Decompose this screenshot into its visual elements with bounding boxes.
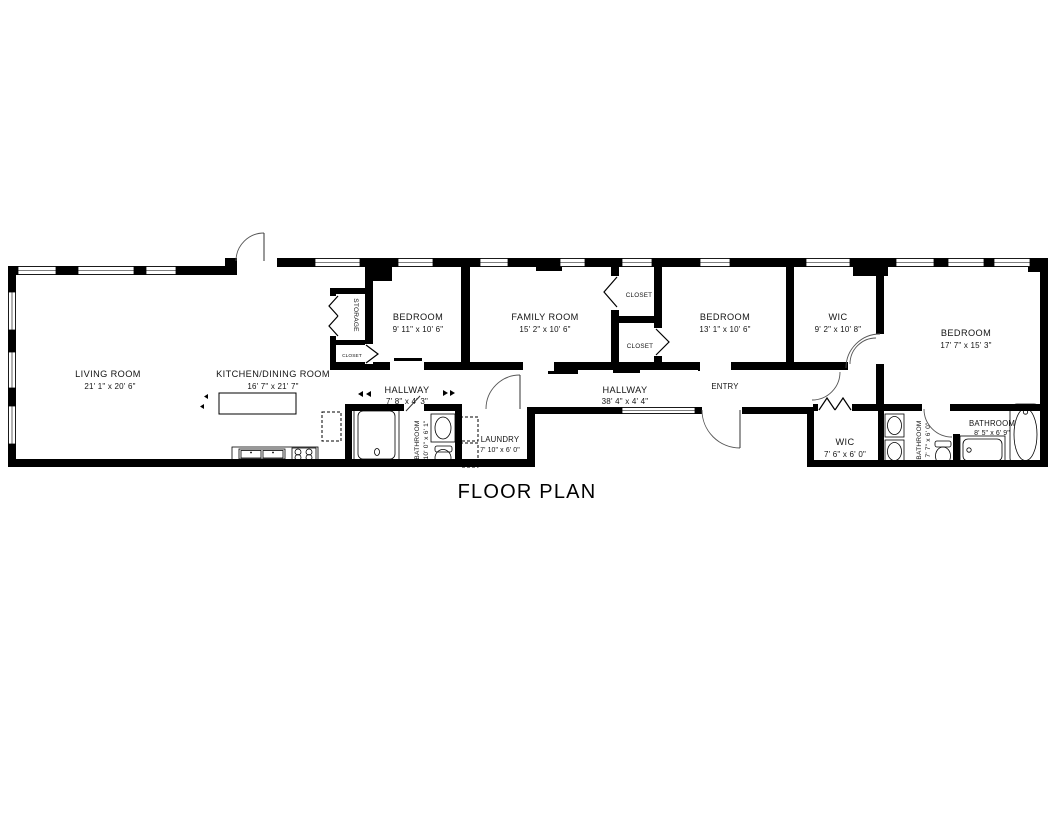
window bbox=[948, 259, 984, 267]
window bbox=[622, 259, 652, 267]
labels: LIVING ROOM 21' 1" x 20' 6" KITCHEN/DINI… bbox=[75, 292, 1015, 503]
shower-bathroom1 bbox=[354, 407, 399, 463]
kitchen-dining-dims: 16' 7" x 21' 7" bbox=[247, 382, 298, 391]
bedroom1-label: BEDROOM bbox=[393, 312, 443, 322]
wall-openings bbox=[237, 257, 950, 415]
living-room-label: LIVING ROOM bbox=[75, 369, 141, 379]
kitchen-dining-label: KITCHEN/DINING ROOM bbox=[216, 369, 330, 379]
shower-bathroom3 bbox=[960, 436, 1005, 464]
window bbox=[896, 259, 934, 267]
closet-top-label: CLOSET bbox=[626, 292, 652, 299]
bedroom2-label: BEDROOM bbox=[700, 312, 750, 322]
window bbox=[398, 259, 433, 267]
wic1-door bbox=[850, 338, 876, 364]
window bbox=[78, 267, 134, 275]
living-room-dims: 21' 1" x 20' 6" bbox=[84, 382, 135, 391]
floor-plan-page: LIVING ROOM 21' 1" x 20' 6" KITCHEN/DINI… bbox=[0, 0, 1056, 816]
kitchen-sink bbox=[239, 449, 285, 459]
double-sink-bathroom2 bbox=[885, 414, 904, 463]
bathroom2-dims: 7' 7" x 6' 0" bbox=[925, 422, 932, 458]
hallway1-label: HALLWAY bbox=[384, 385, 429, 395]
bedroom1-dims: 9' 11" x 10' 6" bbox=[393, 325, 444, 334]
window bbox=[9, 406, 16, 444]
bathroom2-label: BATHROOM bbox=[916, 420, 923, 459]
window bbox=[994, 259, 1030, 267]
bedroom3-label: BEDROOM bbox=[941, 328, 991, 338]
kitchen-island bbox=[219, 393, 296, 414]
plan-title: FLOOR PLAN bbox=[458, 481, 597, 503]
bathroom3-dims: 8' 5" x 6' 9" bbox=[974, 430, 1010, 437]
family-room-label: FAMILY ROOM bbox=[511, 312, 578, 322]
window bbox=[806, 259, 850, 267]
hallway1-dims: 7' 8" x 4' 3" bbox=[386, 397, 428, 406]
window bbox=[146, 267, 176, 275]
family-room-dims: 15' 2" x 10' 6" bbox=[519, 325, 570, 334]
closet-bottom-label: CLOSET bbox=[627, 343, 653, 350]
bathroom1-dims: 10' 0" x 6' 1" bbox=[423, 420, 430, 459]
refrigerator bbox=[322, 412, 341, 441]
bathroom1-label: BATHROOM bbox=[414, 420, 421, 459]
window bbox=[9, 352, 16, 388]
hallway2-label: HALLWAY bbox=[602, 385, 647, 395]
storage-closet-label: CLOSET bbox=[342, 353, 362, 359]
window bbox=[480, 259, 508, 267]
wic2-dims: 7' 6" x 6' 0" bbox=[824, 450, 866, 459]
laundry-label: LAUNDRY bbox=[481, 435, 520, 444]
bedroom2-dims: 13' 1" x 10' 6" bbox=[699, 325, 750, 334]
window bbox=[9, 292, 16, 330]
floor-plan-drawing: LIVING ROOM 21' 1" x 20' 6" KITCHEN/DINI… bbox=[0, 0, 1056, 816]
bathtub bbox=[1010, 404, 1041, 465]
sink-bathroom1 bbox=[431, 414, 455, 442]
window bbox=[700, 259, 730, 267]
wic2-label: WIC bbox=[835, 437, 854, 447]
bedroom3-dims: 17' 7" x 15' 3" bbox=[940, 341, 991, 350]
window bbox=[18, 267, 56, 275]
hall-corridor-door bbox=[812, 372, 840, 400]
window bbox=[315, 259, 360, 267]
storage-label: STORAGE bbox=[352, 298, 359, 332]
bathroom3-label: BATHROOM bbox=[969, 419, 1015, 428]
wic1-dims: 9' 2" x 10' 8" bbox=[815, 325, 862, 334]
laundry-dims: 7' 10" x 6' 0" bbox=[480, 447, 520, 454]
hallway2-dims: 38' 4" x 4' 4" bbox=[602, 397, 649, 406]
entry-top-door bbox=[236, 233, 264, 261]
entry-label: ENTRY bbox=[711, 382, 739, 391]
wic1-label: WIC bbox=[828, 312, 847, 322]
stove bbox=[292, 448, 316, 461]
window bbox=[560, 259, 585, 267]
window bbox=[622, 408, 695, 414]
front-entry-door bbox=[702, 410, 740, 448]
